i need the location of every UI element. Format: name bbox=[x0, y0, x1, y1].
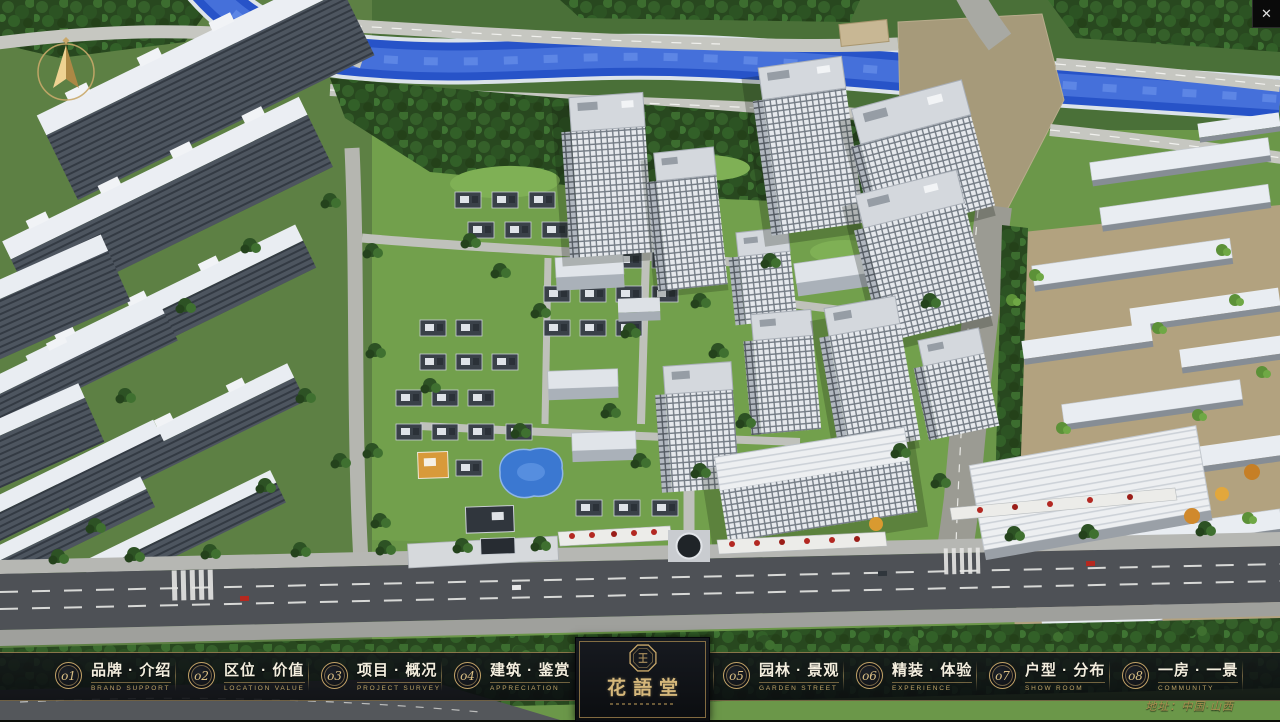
autumn-tree bbox=[1244, 464, 1260, 480]
car bbox=[512, 585, 521, 590]
car bbox=[240, 596, 249, 601]
nav-item-subtitle: APPRECIATION bbox=[490, 682, 570, 692]
nav-item-label: 项目 · 概况 bbox=[357, 659, 441, 680]
nav-item-subtitle: LOCATION VALUE bbox=[224, 682, 305, 692]
nav-divider bbox=[1109, 661, 1110, 691]
nav-item-architecture[interactable]: o4 建筑 · 鉴赏 APPRECIATION bbox=[454, 659, 570, 692]
nav-divider bbox=[441, 661, 442, 691]
nav-divider bbox=[713, 661, 714, 691]
nav-item-label: 品牌 · 介绍 bbox=[91, 659, 171, 680]
nav-divider bbox=[843, 661, 844, 691]
nav-item-label: 精装 · 体验 bbox=[892, 659, 972, 680]
nav-number-badge: o5 bbox=[723, 662, 750, 689]
nav-number-badge: o7 bbox=[989, 662, 1016, 689]
plaza-pavilion bbox=[839, 20, 889, 47]
nav-item-project-survey[interactable]: o3 项目 · 概况 PROJECT SURVEY bbox=[321, 659, 441, 692]
nav-item-label: 一房 · 一景 bbox=[1158, 659, 1238, 680]
nav-item-label: 建筑 · 鉴赏 bbox=[490, 659, 570, 680]
car bbox=[1086, 561, 1095, 566]
project-address: 地址：中国·山西 bbox=[1145, 698, 1234, 714]
nav-item-subtitle: EXPERIENCE bbox=[892, 682, 972, 692]
nav-item-interior-experience[interactable]: o6 精装 · 体验 EXPERIENCE bbox=[856, 659, 972, 692]
nav-item-garden-landscape[interactable]: o5 园林 · 景观 GARDEN STREET bbox=[723, 659, 839, 692]
nav-item-subtitle: BRAND SUPPORT bbox=[91, 682, 171, 692]
nav-item-subtitle: COMMUNITY bbox=[1158, 682, 1238, 692]
nav-number-badge: o1 bbox=[55, 662, 82, 689]
nav-item-subtitle: GARDEN STREET bbox=[759, 682, 839, 692]
autumn-tree bbox=[869, 517, 883, 531]
nav-item-floorplan-distribution[interactable]: o7 户型 · 分布 SHOW ROOM bbox=[989, 659, 1105, 692]
nav-number-badge: o6 bbox=[856, 662, 883, 689]
nav-item-brand-intro[interactable]: o1 品牌 · 介绍 BRAND SUPPORT bbox=[55, 659, 171, 692]
compass-icon bbox=[30, 34, 102, 111]
nav-number-badge: o8 bbox=[1122, 662, 1149, 689]
nav-item-label: 园林 · 景观 bbox=[759, 659, 839, 680]
logo-title: 花語堂 bbox=[600, 673, 685, 700]
kindergarten-building bbox=[418, 451, 449, 478]
nav-divider bbox=[308, 661, 309, 691]
nav-divider bbox=[1242, 661, 1243, 691]
close-button[interactable]: ✕ bbox=[1252, 0, 1280, 28]
nav-divider bbox=[976, 661, 977, 691]
nav-number-badge: o3 bbox=[321, 662, 348, 689]
entrance-circle-plaza bbox=[677, 534, 702, 559]
nav-item-subtitle: SHOW ROOM bbox=[1025, 682, 1105, 692]
nav-number-badge: o2 bbox=[188, 662, 215, 689]
nav-item-subtitle: PROJECT SURVEY bbox=[357, 682, 441, 692]
logo-subtext-rule bbox=[610, 703, 676, 705]
autumn-tree bbox=[1184, 508, 1200, 524]
nav-divider bbox=[175, 661, 176, 691]
nav-number-badge: o4 bbox=[454, 662, 481, 689]
pond bbox=[500, 448, 563, 497]
car bbox=[878, 571, 887, 576]
nav-item-label: 区位 · 价值 bbox=[224, 659, 305, 680]
autumn-tree bbox=[1215, 487, 1229, 501]
nav-item-location-value[interactable]: o2 区位 · 价值 LOCATION VALUE bbox=[188, 659, 305, 692]
nav-item-label: 户型 · 分布 bbox=[1025, 659, 1105, 680]
seal-icon bbox=[629, 644, 657, 672]
nav-item-room-scene[interactable]: o8 一房 · 一景 COMMUNITY bbox=[1122, 659, 1238, 692]
project-logo[interactable]: 花語堂 bbox=[575, 637, 710, 722]
masterplan-render bbox=[0, 0, 1280, 720]
